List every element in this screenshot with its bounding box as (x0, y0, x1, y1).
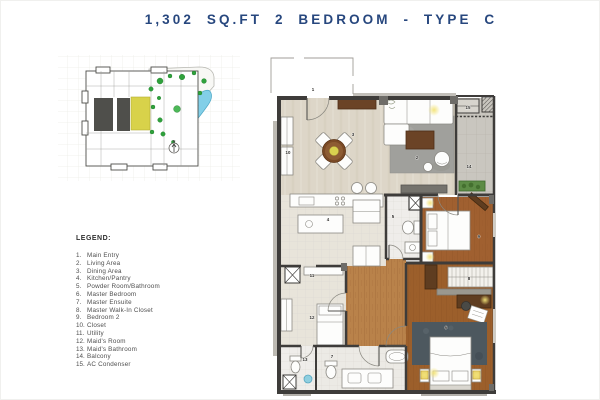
legend-item-number: 3. (76, 268, 87, 276)
vanity-sink-2 (368, 373, 381, 383)
legend-item: 4.Kitchen/Pantry (76, 275, 160, 283)
legend-item-number: 13. (76, 346, 87, 354)
master-cabinet (425, 265, 437, 289)
legend-item: 2.Living Area (76, 260, 160, 268)
legend-item-label: Master Bedroom (87, 291, 136, 299)
exterior-ledge-top (353, 93, 456, 96)
master-headboard (430, 385, 471, 390)
window-master (493, 309, 496, 343)
pouf (352, 183, 363, 194)
legend-item-label: Living Area (87, 260, 120, 268)
master-ceiling-light (429, 368, 440, 379)
pouf (366, 183, 377, 194)
bath-sink (405, 242, 420, 253)
vanity-sink-1 (348, 373, 361, 383)
legend-item: 12.Maid's Room (76, 338, 160, 346)
legend-item: 6.Master Bedroom (76, 291, 160, 299)
keyplan: Infinity Pool (56, 53, 246, 183)
legend: LEGEND: 1.Main Entry2.Living Area3.Dinin… (76, 235, 160, 369)
legend-item-label: Bedroom 2 (87, 314, 120, 322)
legend-item: 14.Balcony (76, 353, 160, 361)
maid-toilet (291, 361, 300, 373)
legend-item-number: 6. (76, 291, 87, 299)
exterior-finish-left (273, 121, 277, 356)
legend-item-number: 15. (76, 361, 87, 369)
legend-item-number: 11. (76, 330, 87, 338)
legend-item: 8.Master Walk-In Closet (76, 307, 160, 315)
legend-item-number: 2. (76, 260, 87, 268)
desk-lamp-glow (480, 295, 490, 305)
legend-item: 1.Main Entry (76, 252, 160, 260)
legend-item-number: 7. (76, 299, 87, 307)
fridge (353, 246, 380, 266)
ceiling-light (428, 104, 440, 116)
kitchen-island (298, 215, 343, 233)
legend-item-number: 14. (76, 353, 87, 361)
room-number-15: 15 (466, 105, 471, 110)
legend-item: 13.Maid's Bathroom (76, 346, 160, 354)
legend-item-label: Master Ensuite (87, 299, 132, 307)
room-number-12: 12 (310, 315, 315, 320)
service-shaft (482, 97, 494, 112)
floorplan-page: 1,302 SQ.FT 2 BEDROOM - TYPE C Infinity … (0, 0, 600, 400)
legend-item-label: Maid's Bathroom (87, 346, 137, 354)
bedroom2-pillow-2 (428, 231, 437, 246)
legend-item-number: 1. (76, 252, 87, 260)
legend-item-label: Main Entry (87, 252, 119, 260)
legend-item-label: AC Condenser (87, 361, 131, 369)
legend-item-label: Maid's Room (87, 338, 126, 346)
master-bench (437, 289, 491, 295)
bedroom2-pillow-1 (428, 214, 437, 229)
legend-item-label: Utility (87, 330, 104, 338)
legend-item-number: 12. (76, 338, 87, 346)
master-bed (430, 337, 471, 390)
legend-item-label: Master Walk-In Closet (87, 307, 153, 315)
legend-item: 3.Dining Area (76, 268, 160, 276)
toilet-tank (414, 221, 420, 234)
north-label: N (173, 140, 176, 144)
legend-item-label: Powder Room/Bathroom (87, 283, 160, 291)
room-number-1: 1 (312, 87, 315, 92)
legend-item-number: 10. (76, 322, 87, 330)
master-pillow-2 (452, 371, 468, 381)
kitchen-sink (299, 197, 314, 205)
page-title: 1,302 SQ.FT 2 BEDROOM - TYPE C (41, 12, 600, 27)
coffee-table (406, 131, 434, 149)
unit-floorplan: 123456789101112131415 (263, 49, 505, 397)
room-number-10: 10 (286, 150, 291, 155)
legend-item-number: 5. (76, 283, 87, 291)
legend-list: 1.Main Entry2.Living Area3.Dining Area4.… (76, 252, 160, 369)
desk-chair (462, 302, 471, 311)
maid-sink (304, 375, 312, 383)
legend-item-label: Dining Area (87, 268, 122, 276)
ensuite-toilet (326, 366, 336, 379)
tv-console (401, 185, 447, 193)
building-core-1 (94, 98, 113, 131)
room-number-11: 11 (310, 273, 315, 278)
legend-item: 9.Bedroom 2 (76, 314, 160, 322)
legend-item-label: Kitchen/Pantry (87, 275, 131, 283)
legend-item-label: Closet (87, 322, 106, 330)
legend-item: 5.Powder Room/Bathroom (76, 283, 160, 291)
entry-console (338, 99, 376, 109)
legend-item: 7.Master Ensuite (76, 299, 160, 307)
toilet (403, 221, 414, 234)
room-number-13: 13 (303, 357, 308, 362)
bathtub (386, 350, 408, 363)
legend-item: 11.Utility (76, 330, 160, 338)
window-bedroom2 (493, 213, 496, 237)
legend-item: 10.Closet (76, 322, 160, 330)
unit-highlight (131, 97, 150, 130)
maid-toilet-tank (290, 356, 301, 361)
legend-item-number: 4. (76, 275, 87, 283)
legend-item-number: 8. (76, 307, 87, 315)
legend-item-number: 9. (76, 314, 87, 322)
legend-heading: LEGEND: (76, 235, 160, 242)
ottoman (424, 163, 433, 172)
legend-item-label: Balcony (87, 353, 111, 361)
building-core-2 (117, 98, 130, 131)
room-number-14: 14 (467, 164, 472, 169)
legend-item: 15.AC Condenser (76, 361, 160, 369)
